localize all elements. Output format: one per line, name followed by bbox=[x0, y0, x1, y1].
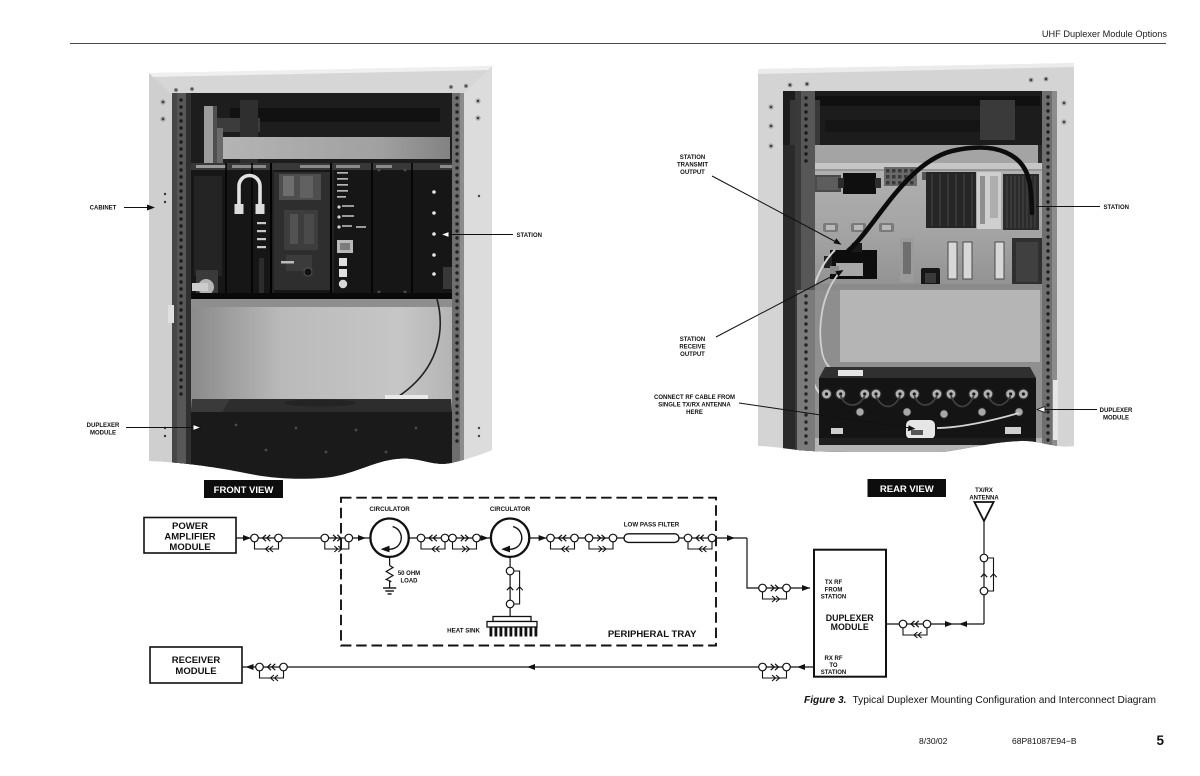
svg-text:STATION: STATION bbox=[517, 233, 542, 239]
svg-text:PERIPHERAL TRAY: PERIPHERAL TRAY bbox=[608, 629, 697, 640]
svg-text:RECEIVER: RECEIVER bbox=[172, 655, 221, 666]
svg-text:CONNECT RF CABLE FROM: CONNECT RF CABLE FROM bbox=[654, 395, 735, 401]
svg-text:Figure 3.Typical Duplexer Moun: Figure 3.Typical Duplexer Mounting Confi… bbox=[804, 695, 1156, 706]
svg-text:MODULE: MODULE bbox=[175, 666, 216, 677]
svg-text:50 OHM: 50 OHM bbox=[398, 571, 420, 577]
svg-text:STATION: STATION bbox=[821, 595, 846, 601]
svg-text:DUPLEXER: DUPLEXER bbox=[87, 423, 120, 429]
svg-text:RECEIVE: RECEIVE bbox=[679, 345, 705, 351]
svg-text:CABINET: CABINET bbox=[90, 206, 117, 212]
svg-text:MODULE: MODULE bbox=[90, 431, 116, 437]
svg-text:SINGLE TX/RX ANTENNA: SINGLE TX/RX ANTENNA bbox=[658, 403, 731, 409]
svg-text:TRANSMIT: TRANSMIT bbox=[677, 163, 708, 169]
svg-text:ANTENNA: ANTENNA bbox=[969, 496, 999, 502]
svg-text:DUPLEXER: DUPLEXER bbox=[1100, 408, 1133, 414]
svg-text:LOAD: LOAD bbox=[401, 579, 419, 585]
svg-text:HERE: HERE bbox=[686, 410, 703, 416]
svg-text:OUTPUT: OUTPUT bbox=[680, 352, 705, 358]
svg-text:STATION: STATION bbox=[1104, 205, 1129, 211]
svg-text:8/30/02: 8/30/02 bbox=[919, 736, 948, 746]
svg-text:RX RF: RX RF bbox=[825, 656, 843, 662]
svg-text:OUTPUT: OUTPUT bbox=[680, 170, 705, 176]
svg-text:MODULE: MODULE bbox=[1103, 416, 1129, 422]
svg-text:68P81087E94−B: 68P81087E94−B bbox=[1012, 736, 1077, 746]
svg-text:CIRCULATOR: CIRCULATOR bbox=[369, 506, 410, 513]
svg-text:TX/RX: TX/RX bbox=[975, 488, 993, 494]
svg-text:HEAT SINK: HEAT SINK bbox=[447, 628, 480, 635]
svg-text:AMPLIFIER: AMPLIFIER bbox=[164, 532, 215, 543]
svg-text:CIRCULATOR: CIRCULATOR bbox=[490, 506, 531, 513]
svg-text:REAR VIEW: REAR VIEW bbox=[880, 484, 934, 495]
svg-text:MODULE: MODULE bbox=[169, 542, 210, 553]
svg-text:FROM: FROM bbox=[825, 587, 843, 593]
svg-text:LOW PASS FILTER: LOW PASS FILTER bbox=[624, 522, 680, 529]
svg-text:POWER: POWER bbox=[172, 521, 208, 532]
svg-text:MODULE: MODULE bbox=[831, 622, 869, 632]
svg-text:5: 5 bbox=[1156, 733, 1164, 748]
svg-text:FRONT VIEW: FRONT VIEW bbox=[214, 485, 274, 496]
svg-text:STATION: STATION bbox=[821, 670, 846, 676]
svg-text:TO: TO bbox=[829, 663, 838, 669]
svg-text:STATION: STATION bbox=[680, 155, 705, 161]
svg-text:STATION: STATION bbox=[680, 337, 705, 343]
svg-text:UHF Duplexer Module Options: UHF Duplexer Module Options bbox=[1042, 29, 1168, 39]
svg-text:TX RF: TX RF bbox=[825, 580, 843, 586]
